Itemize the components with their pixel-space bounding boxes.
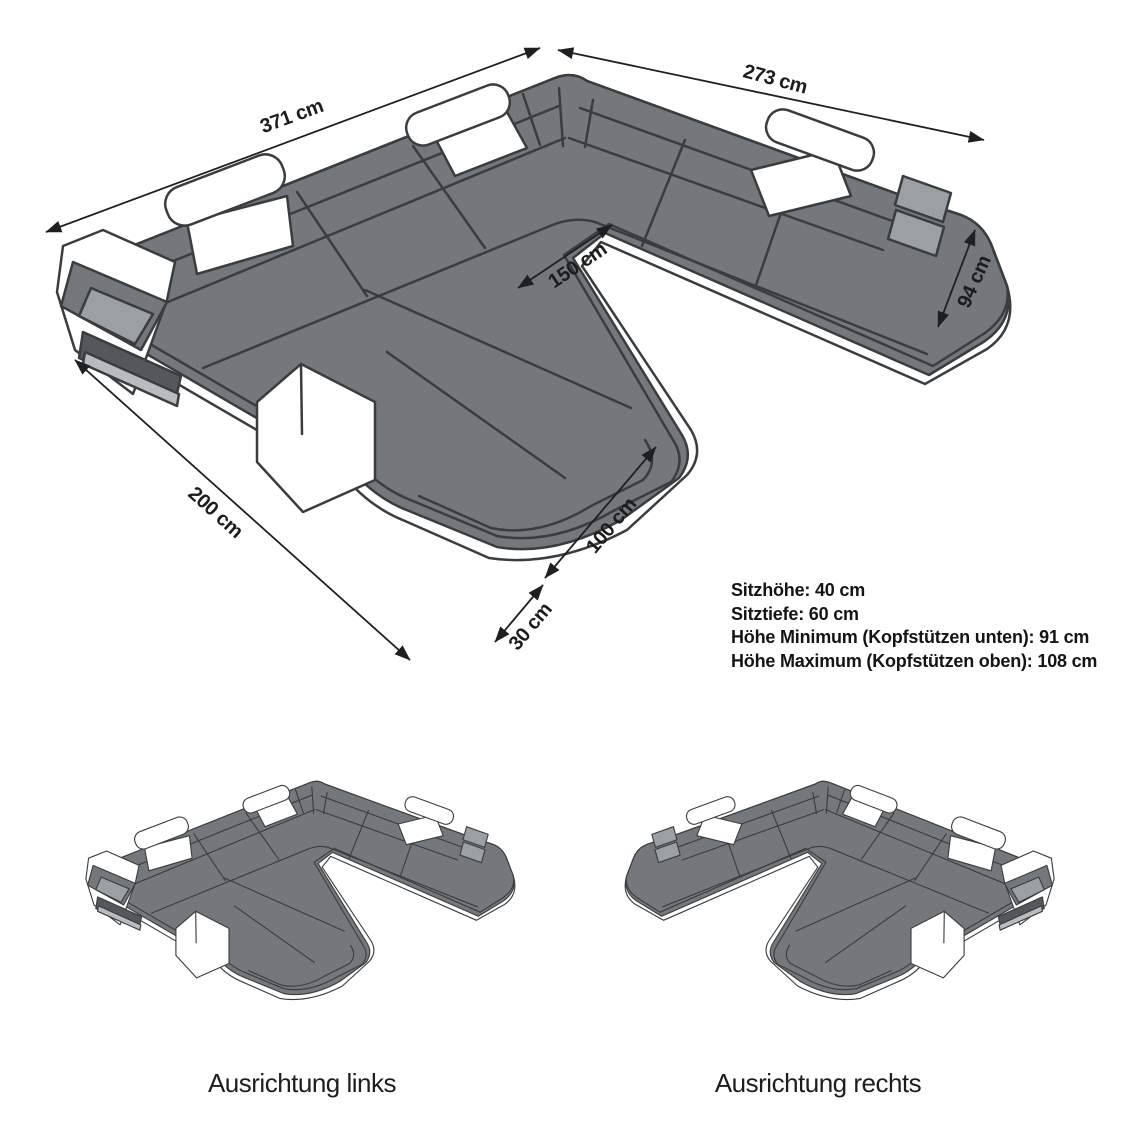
spec-height-minimum: Höhe Minimum (Kopfstützen unten): 91 cm bbox=[731, 626, 1097, 650]
spec-height-maximum: Höhe Maximum (Kopfstützen oben): 108 cm bbox=[731, 650, 1097, 674]
spec-seat-depth: Sitztiefe: 60 cm bbox=[731, 603, 1097, 627]
variant-left-drawing bbox=[86, 781, 515, 999]
variant-right-drawing bbox=[625, 781, 1054, 999]
variant-caption-links: Ausrichtung links bbox=[142, 1068, 462, 1099]
sofa-diagram-canvas bbox=[0, 0, 1134, 1134]
product-dimension-sheet: 371 cm 273 cm 150 cm 94 cm 200 cm 100 cm… bbox=[0, 0, 1134, 1134]
variant-caption-rechts: Ausrichtung rechts bbox=[658, 1068, 978, 1099]
spec-seat-height: Sitzhöhe: 40 cm bbox=[731, 579, 1097, 603]
specs-block: Sitzhöhe: 40 cm Sitztiefe: 60 cm Höhe Mi… bbox=[731, 579, 1097, 673]
